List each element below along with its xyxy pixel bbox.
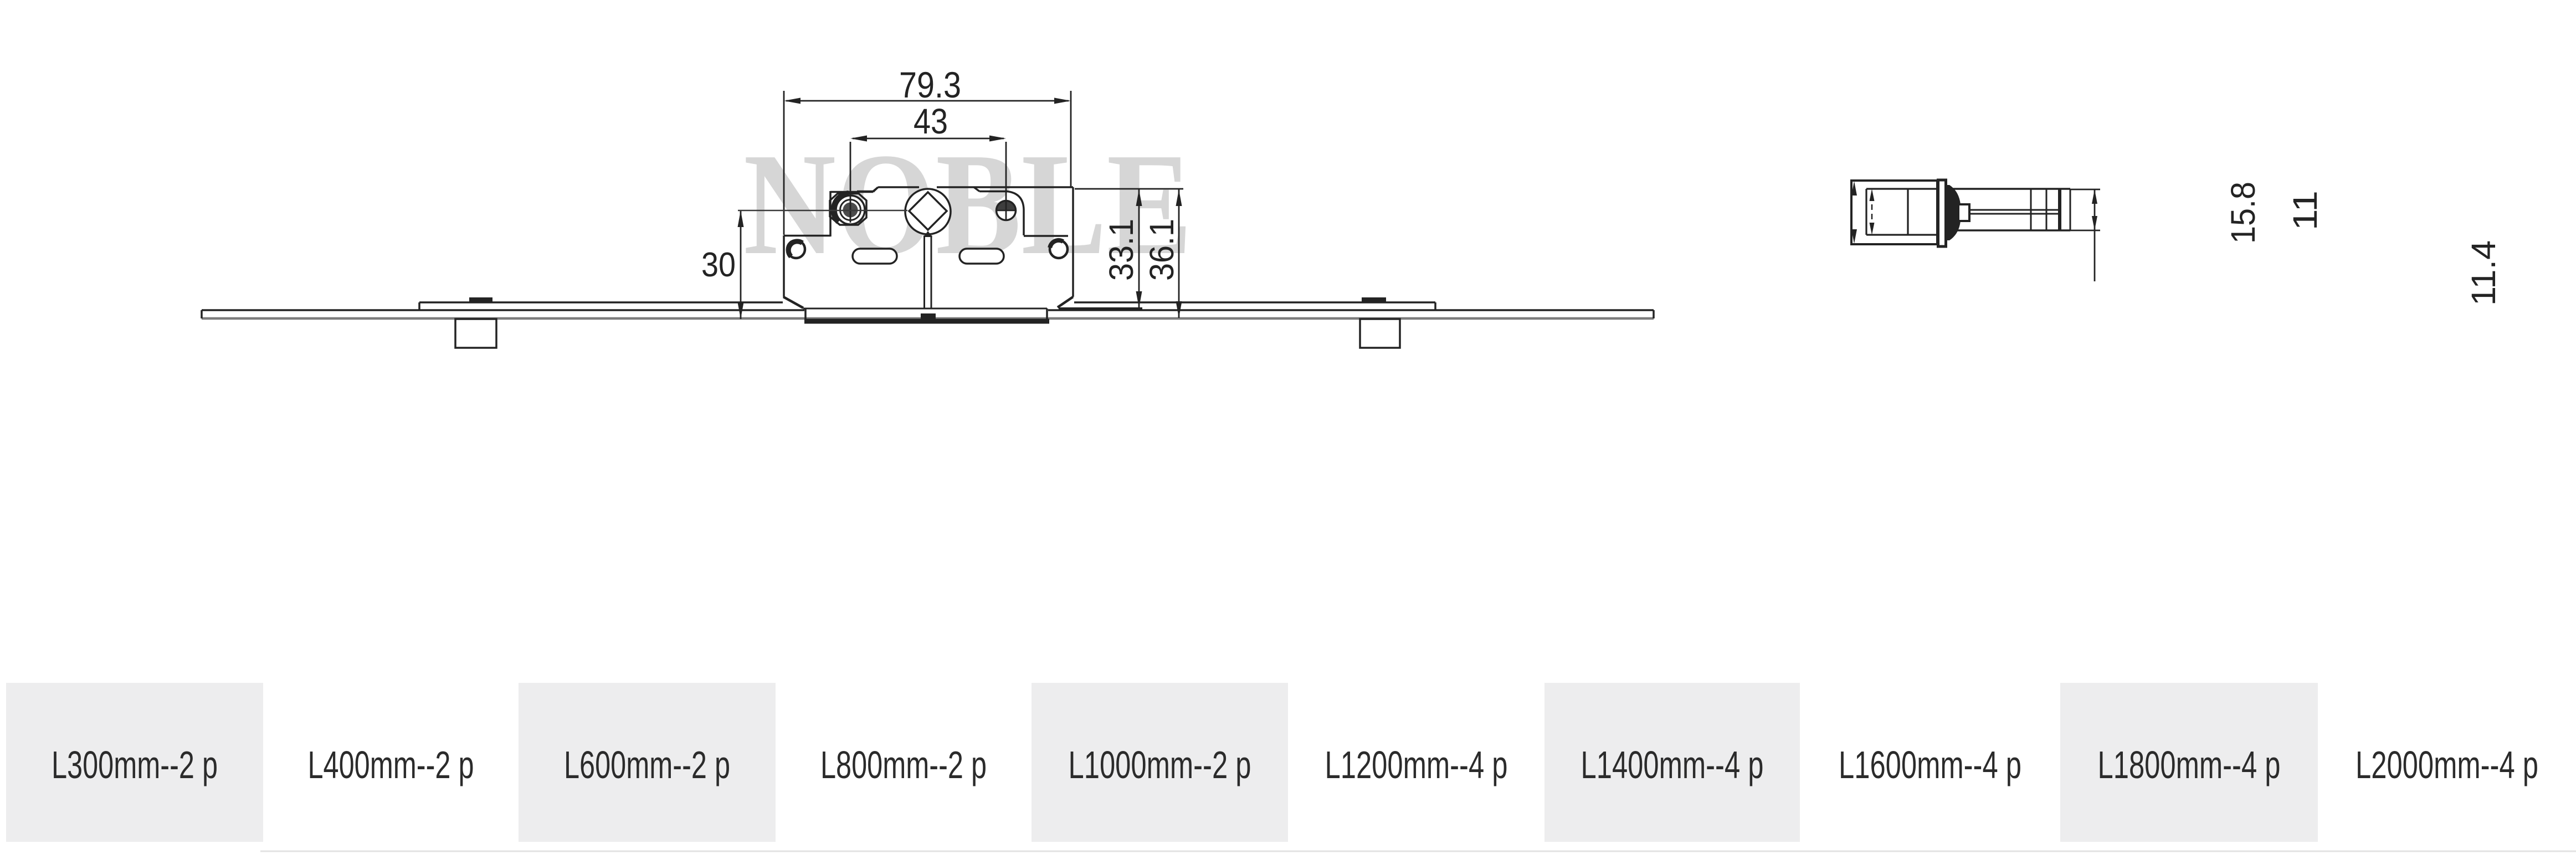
svg-text:L1800mm--4 p: L1800mm--4 p — [2098, 743, 2281, 786]
svg-text:33.1: 33.1 — [1102, 219, 1140, 281]
svg-text:30: 30 — [701, 246, 736, 284]
svg-text:79.3: 79.3 — [899, 64, 961, 105]
svg-text:L1200mm--4 p: L1200mm--4 p — [1325, 743, 1508, 786]
svg-text:43: 43 — [914, 101, 948, 141]
svg-text:11.4: 11.4 — [2465, 240, 2502, 306]
svg-text:L300mm--2 p: L300mm--2 p — [52, 743, 218, 786]
svg-text:L400mm--2 p: L400mm--2 p — [308, 743, 474, 786]
svg-text:15.8: 15.8 — [2224, 182, 2262, 244]
svg-text:36.1: 36.1 — [1143, 219, 1181, 281]
svg-text:L1600mm--4 p: L1600mm--4 p — [1839, 743, 2021, 786]
svg-text:L600mm--2 p: L600mm--2 p — [564, 743, 730, 786]
svg-text:L1400mm--4 p: L1400mm--4 p — [1581, 743, 1764, 786]
svg-text:L800mm--2 p: L800mm--2 p — [820, 743, 987, 786]
svg-text:11: 11 — [2286, 191, 2324, 230]
svg-text:L2000mm--4 p: L2000mm--4 p — [2356, 743, 2538, 786]
svg-text:L1000mm--2 p: L1000mm--2 p — [1069, 743, 1251, 786]
